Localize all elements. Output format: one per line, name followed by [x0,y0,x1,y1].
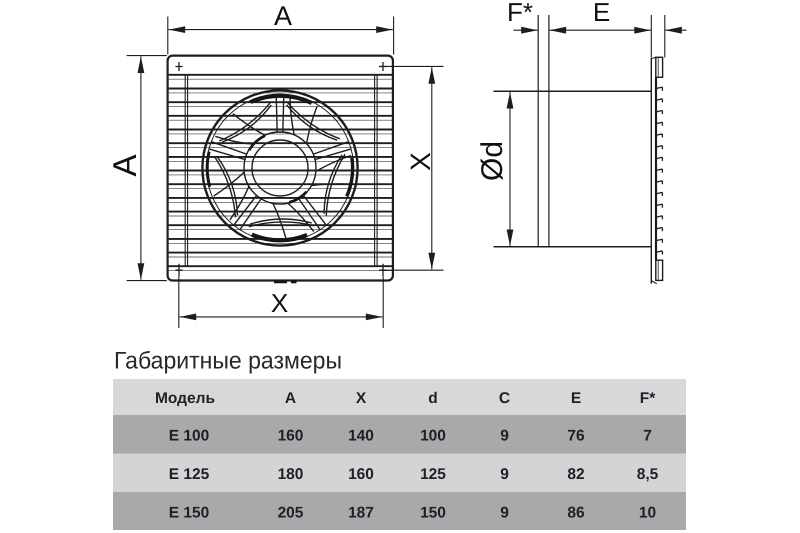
svg-text:A: A [106,154,143,176]
svg-text:7: 7 [643,428,652,445]
svg-text:100: 100 [420,428,446,445]
svg-text:E 150: E 150 [169,505,210,522]
svg-text:9: 9 [500,505,509,522]
svg-text:X: X [271,288,288,318]
svg-text:A: A [274,1,292,31]
svg-text:E 125: E 125 [169,466,210,483]
svg-text:180: 180 [278,466,304,483]
svg-text:C: C [499,390,510,407]
svg-text:X: X [356,390,367,407]
svg-text:160: 160 [278,428,304,445]
svg-text:Ød: Ød [476,141,509,181]
svg-text:86: 86 [567,505,585,522]
svg-text:X: X [405,152,436,171]
svg-text:10: 10 [639,505,656,522]
svg-text:F*: F* [640,390,656,407]
svg-text:8,5: 8,5 [637,466,659,483]
svg-text:9: 9 [500,466,509,483]
svg-text:150: 150 [420,505,446,522]
svg-text:205: 205 [278,505,304,522]
svg-text:E: E [571,390,581,407]
svg-text:A: A [285,390,296,407]
svg-text:76: 76 [567,428,585,445]
svg-text:160: 160 [348,466,374,483]
svg-text:187: 187 [348,505,374,522]
svg-text:9: 9 [500,428,509,445]
svg-text:d: d [428,390,437,407]
svg-text:82: 82 [567,466,584,483]
svg-text:125: 125 [420,466,446,483]
svg-text:E 100: E 100 [169,428,210,445]
svg-text:F*: F* [507,0,533,27]
svg-text:Габаритные размеры: Габаритные размеры [114,348,342,375]
svg-text:Модель: Модель [155,390,215,407]
svg-text:E: E [593,0,610,27]
svg-text:140: 140 [348,428,374,445]
